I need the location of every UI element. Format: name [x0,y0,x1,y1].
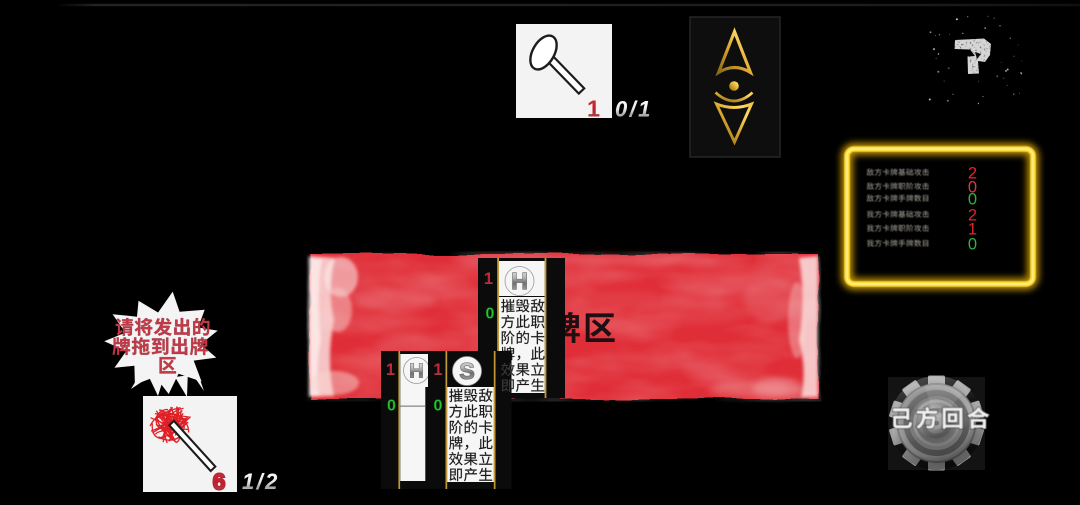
svg-text:1: 1 [587,96,600,122]
svg-text:1: 1 [433,361,442,379]
svg-text:H: H [409,361,423,383]
svg-text:0: 0 [434,398,443,415]
svg-text:0: 0 [486,306,495,323]
svg-text:H: H [511,268,528,294]
svg-text:0: 0 [968,235,977,253]
svg-text:1: 1 [484,270,493,288]
svg-text:1: 1 [386,361,395,379]
svg-text:0: 0 [387,398,396,415]
svg-text:1/2: 1/2 [242,469,280,494]
svg-text:6: 6 [213,469,226,495]
svg-text:S: S [459,358,474,384]
svg-text:0/1: 0/1 [615,97,653,122]
